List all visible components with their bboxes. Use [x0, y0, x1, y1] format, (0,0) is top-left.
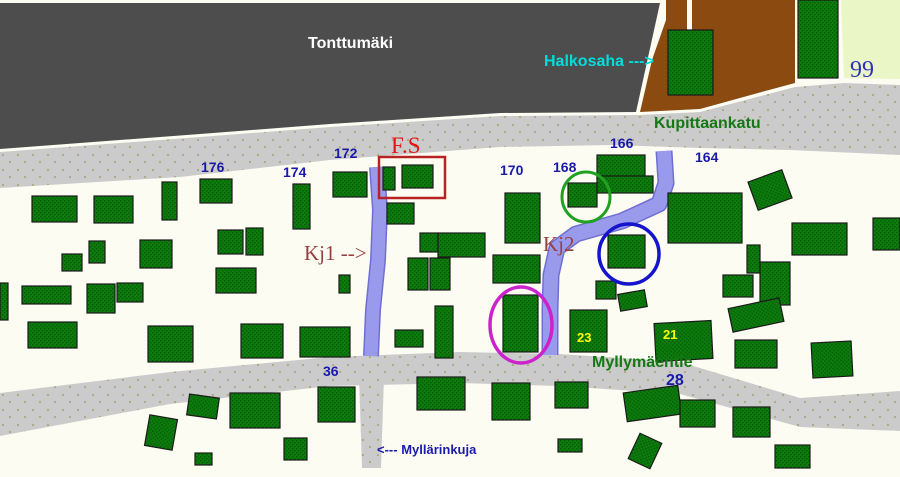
building [333, 172, 367, 197]
building [555, 382, 588, 408]
building [395, 330, 423, 347]
building [230, 393, 280, 428]
label-number-172: 172 [334, 146, 357, 160]
label-number-174: 174 [283, 165, 306, 179]
label-number-99: 99 [850, 58, 874, 82]
label-number-168: 168 [553, 160, 576, 174]
building [775, 445, 810, 468]
label-myllymaentie: Myllymäentie [592, 355, 692, 371]
label-number-21: 21 [663, 328, 677, 341]
building [723, 275, 753, 297]
building [435, 306, 453, 358]
building [94, 196, 133, 223]
building [417, 377, 465, 410]
building [339, 275, 350, 293]
label-number-170: 170 [500, 163, 523, 177]
building [596, 281, 616, 299]
label-fs: F.S [391, 134, 421, 157]
building [216, 268, 256, 293]
building [798, 0, 838, 78]
building [62, 254, 82, 271]
building [792, 223, 847, 255]
label-kj2: Kj2 [543, 234, 575, 255]
building [668, 30, 713, 95]
building [145, 415, 178, 450]
building [408, 258, 428, 290]
building [195, 453, 212, 465]
building [680, 400, 715, 427]
woodyard-divider [687, 0, 692, 30]
label-number-166: 166 [610, 136, 633, 150]
building [558, 439, 582, 452]
building [284, 438, 307, 460]
building [811, 341, 853, 378]
building [200, 179, 232, 203]
building [246, 228, 263, 255]
building [148, 326, 193, 362]
building [438, 233, 485, 257]
building [873, 218, 900, 250]
building [87, 284, 115, 313]
building [735, 340, 777, 368]
building [89, 241, 105, 263]
building [597, 155, 645, 179]
building [140, 240, 172, 268]
building [493, 255, 540, 283]
building [402, 165, 433, 188]
building [117, 283, 143, 302]
label-number-36: 36 [323, 364, 339, 378]
building [430, 258, 450, 290]
building [187, 394, 220, 419]
building [318, 387, 355, 422]
building [503, 295, 538, 352]
building [241, 324, 283, 358]
building [383, 167, 395, 190]
label-number-176: 176 [201, 160, 224, 174]
building [608, 235, 645, 268]
label-myllarinkuja: <--- Myllärinkuja [377, 443, 476, 456]
building [28, 322, 77, 348]
building [568, 183, 597, 207]
label-halkosaha: Halkosaha ---> [544, 54, 654, 70]
label-number-23: 23 [577, 331, 591, 344]
building [387, 203, 414, 224]
building [32, 196, 77, 222]
building [162, 182, 177, 220]
building [505, 193, 540, 243]
building [22, 286, 71, 304]
map-canvas [0, 0, 900, 477]
building [492, 383, 530, 420]
label-tonttumaki: Tonttumäki [308, 36, 393, 52]
label-kupittaankatu: Kupittaankatu [654, 116, 761, 132]
building [747, 245, 760, 273]
building [300, 327, 350, 357]
neighborhood-map: TonttumäkiHalkosaha --->99Kupittaankatu1… [0, 0, 900, 477]
label-number-28: 28 [666, 373, 684, 389]
building [420, 233, 438, 252]
label-kj1: Kj1 --> [304, 243, 367, 264]
building [218, 230, 243, 254]
building [293, 184, 310, 229]
building [668, 193, 742, 243]
label-number-164: 164 [695, 150, 718, 164]
building [733, 407, 770, 437]
building [0, 283, 8, 320]
